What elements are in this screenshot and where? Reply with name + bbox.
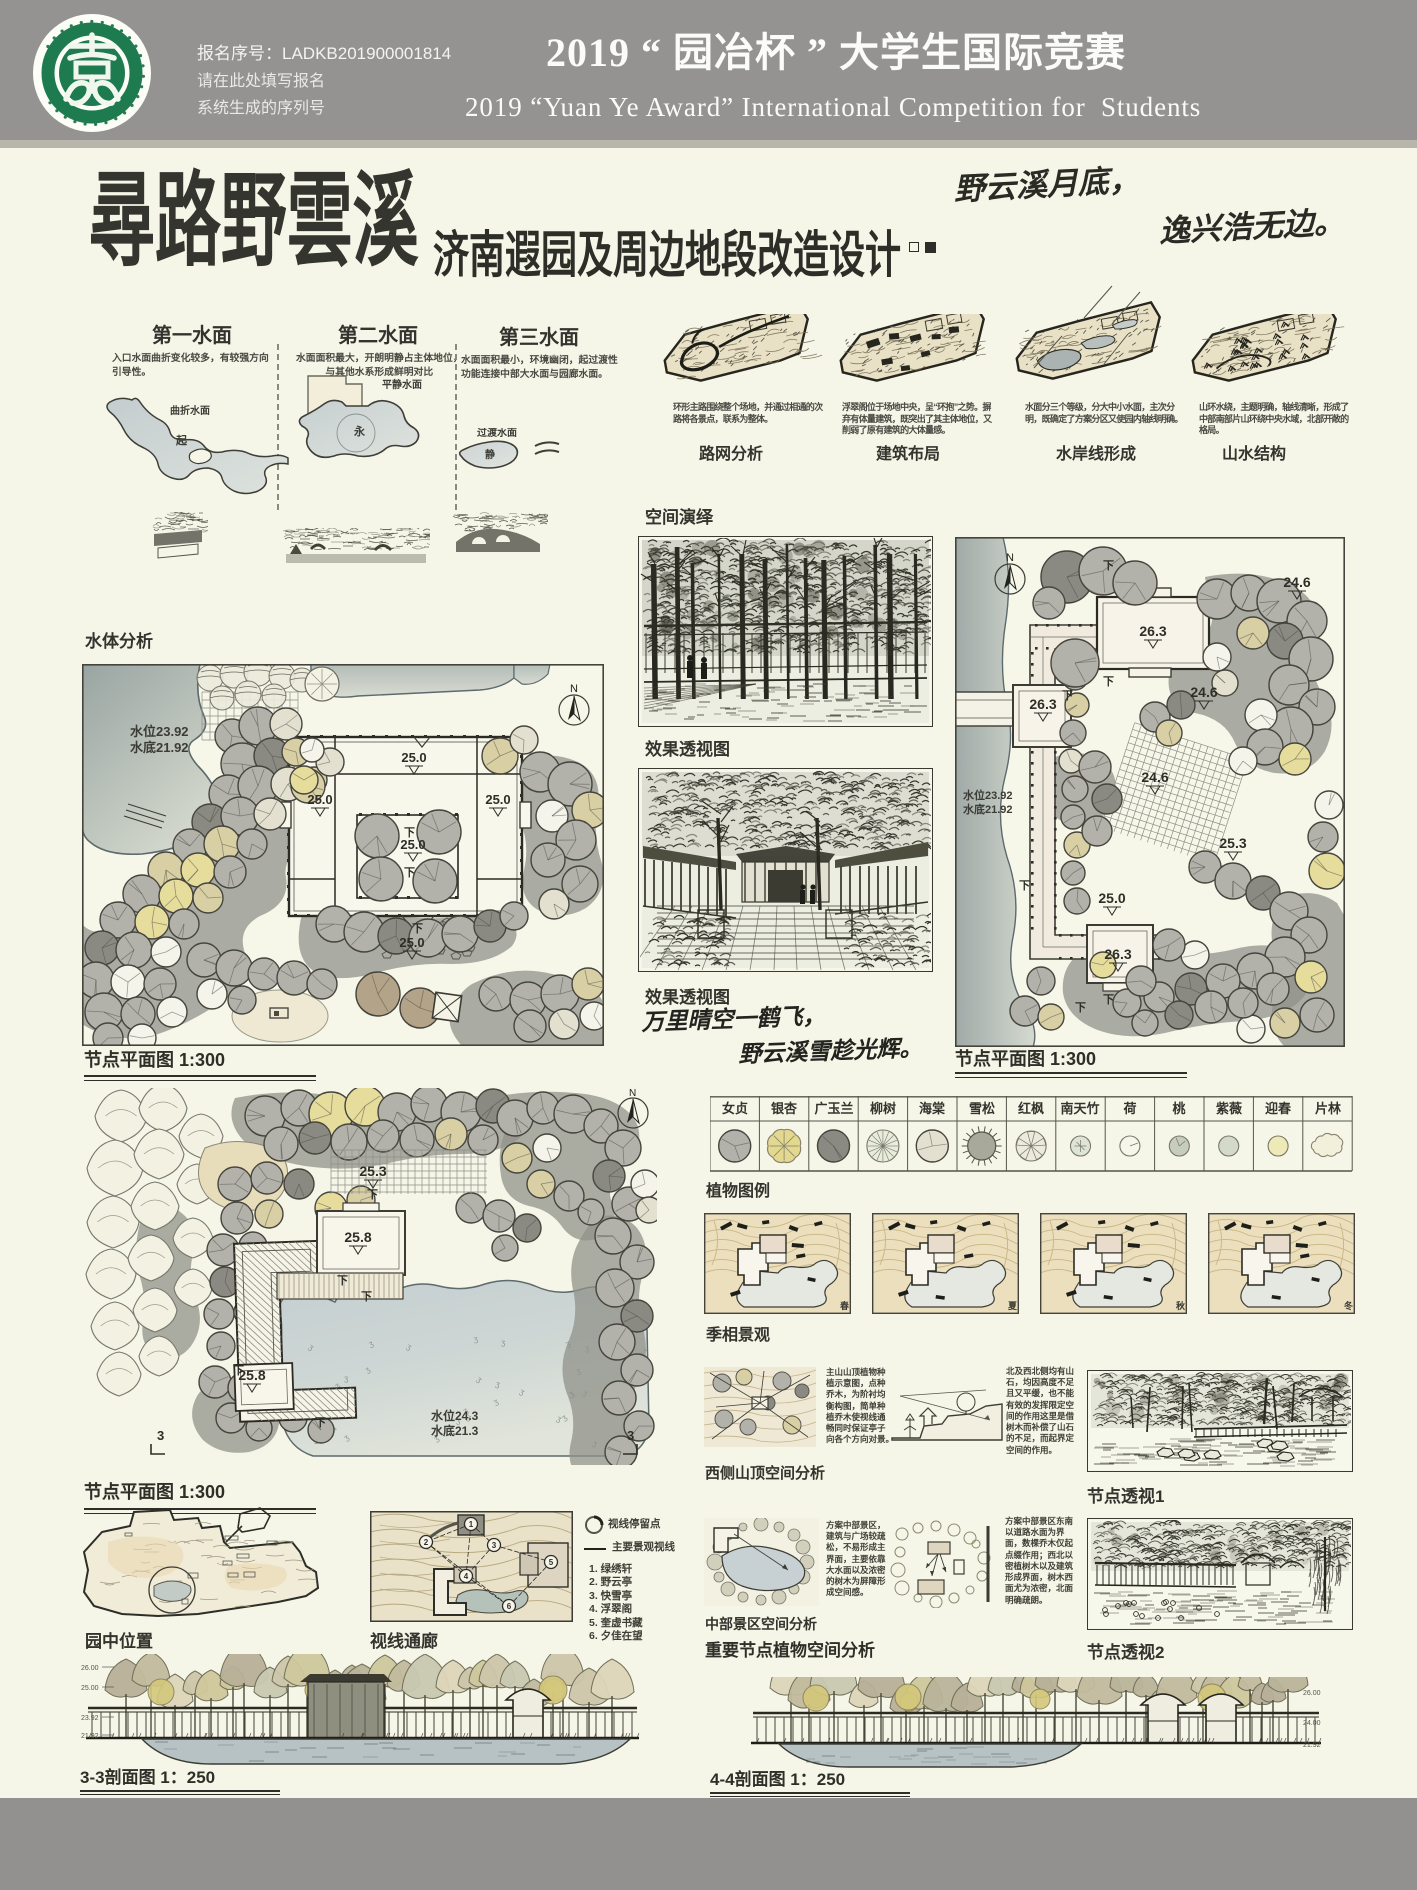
svg-text:下: 下	[404, 826, 415, 839]
svg-text:柳树: 柳树	[870, 1101, 896, 1116]
svg-text:下: 下	[1103, 559, 1114, 572]
svg-text:秋: 秋	[1175, 1300, 1186, 1311]
svg-text:26.00: 26.00	[81, 1665, 99, 1672]
svg-text:下: 下	[315, 1416, 326, 1429]
svg-text:1: 1	[469, 1520, 474, 1529]
svg-text:21.92: 21.92	[81, 1733, 99, 1740]
svg-text:3: 3	[492, 1541, 497, 1550]
svg-text:25.0: 25.0	[1098, 890, 1125, 906]
svg-text:26.3: 26.3	[1029, 696, 1056, 712]
svg-text:6: 6	[507, 1602, 512, 1611]
svg-text:静: 静	[485, 448, 495, 461]
svg-text:下: 下	[233, 1364, 244, 1377]
svg-text:雪松: 雪松	[969, 1101, 995, 1116]
svg-text:25.0: 25.0	[399, 935, 424, 950]
svg-text:水位23.92: 水位23.92	[130, 724, 189, 739]
svg-text:24.00: 24.00	[1303, 1720, 1321, 1727]
svg-text:片林: 片林	[1315, 1101, 1341, 1116]
svg-text:25.0: 25.0	[485, 792, 510, 807]
svg-text:3: 3	[157, 1428, 164, 1443]
svg-text:24.6: 24.6	[1283, 574, 1310, 590]
svg-text:下: 下	[404, 866, 415, 879]
svg-text:曲折水面: 曲折水面	[170, 404, 210, 417]
svg-text:25.0: 25.0	[307, 792, 332, 807]
svg-text:24.6: 24.6	[1190, 684, 1217, 700]
svg-text:25.0: 25.0	[400, 837, 425, 852]
svg-text:永: 永	[353, 424, 366, 438]
svg-text:广玉兰: 广玉兰	[814, 1101, 853, 1116]
svg-text:下: 下	[1103, 675, 1114, 688]
svg-text:水位24.3: 水位24.3	[431, 1408, 479, 1423]
svg-text:水底21.92: 水底21.92	[130, 740, 189, 755]
svg-text:5: 5	[549, 1558, 554, 1567]
svg-text:水底21.92: 水底21.92	[963, 802, 1013, 816]
svg-text:下: 下	[337, 1274, 348, 1287]
svg-text:N: N	[1006, 552, 1014, 564]
svg-text:21.92: 21.92	[1303, 1742, 1321, 1749]
svg-text:23.92: 23.92	[81, 1715, 99, 1722]
svg-text:水底21.3: 水底21.3	[431, 1423, 479, 1438]
svg-text:红枫: 红枫	[1018, 1101, 1044, 1116]
svg-text:25.3: 25.3	[359, 1163, 386, 1179]
svg-text:N: N	[570, 683, 578, 695]
svg-text:25.00: 25.00	[81, 1685, 99, 1692]
svg-text:26.00: 26.00	[1303, 1690, 1321, 1697]
svg-text:2: 2	[424, 1538, 429, 1547]
svg-text:25.0: 25.0	[401, 750, 426, 765]
svg-text:南天竹: 南天竹	[1060, 1101, 1099, 1116]
svg-text:25.8: 25.8	[344, 1229, 371, 1245]
svg-text:春: 春	[839, 1300, 850, 1311]
svg-text:下: 下	[412, 922, 423, 935]
svg-text:桃: 桃	[1172, 1101, 1185, 1116]
svg-text:迎春: 迎春	[1265, 1101, 1292, 1116]
svg-text:紫薇: 紫薇	[1216, 1101, 1242, 1116]
svg-text:海棠: 海棠	[919, 1101, 946, 1116]
svg-text:冬: 冬	[1344, 1300, 1354, 1311]
svg-text:下: 下	[1062, 689, 1073, 702]
svg-text:25.3: 25.3	[1219, 835, 1246, 851]
svg-text:24.6: 24.6	[1141, 769, 1168, 785]
svg-text:下: 下	[367, 1188, 378, 1201]
svg-text:夏: 夏	[1007, 1301, 1018, 1311]
svg-text:水位23.92: 水位23.92	[963, 788, 1013, 802]
svg-text:下: 下	[1103, 993, 1114, 1006]
svg-text:银杏: 银杏	[771, 1101, 798, 1116]
svg-text:下: 下	[1075, 1001, 1086, 1014]
svg-text:26.3: 26.3	[1139, 623, 1166, 639]
svg-text:26.3: 26.3	[1104, 946, 1131, 962]
svg-text:过渡水面: 过渡水面	[477, 428, 517, 439]
svg-text:N: N	[629, 1088, 636, 1099]
svg-text:3: 3	[627, 1428, 634, 1443]
svg-text:起: 起	[175, 433, 188, 447]
svg-text:女贞: 女贞	[722, 1101, 748, 1116]
svg-text:4: 4	[464, 1572, 469, 1581]
svg-text:荷: 荷	[1122, 1101, 1136, 1116]
svg-text:下: 下	[1019, 879, 1030, 892]
svg-text:平静水面: 平静水面	[382, 378, 422, 391]
svg-text:下: 下	[361, 1290, 372, 1303]
